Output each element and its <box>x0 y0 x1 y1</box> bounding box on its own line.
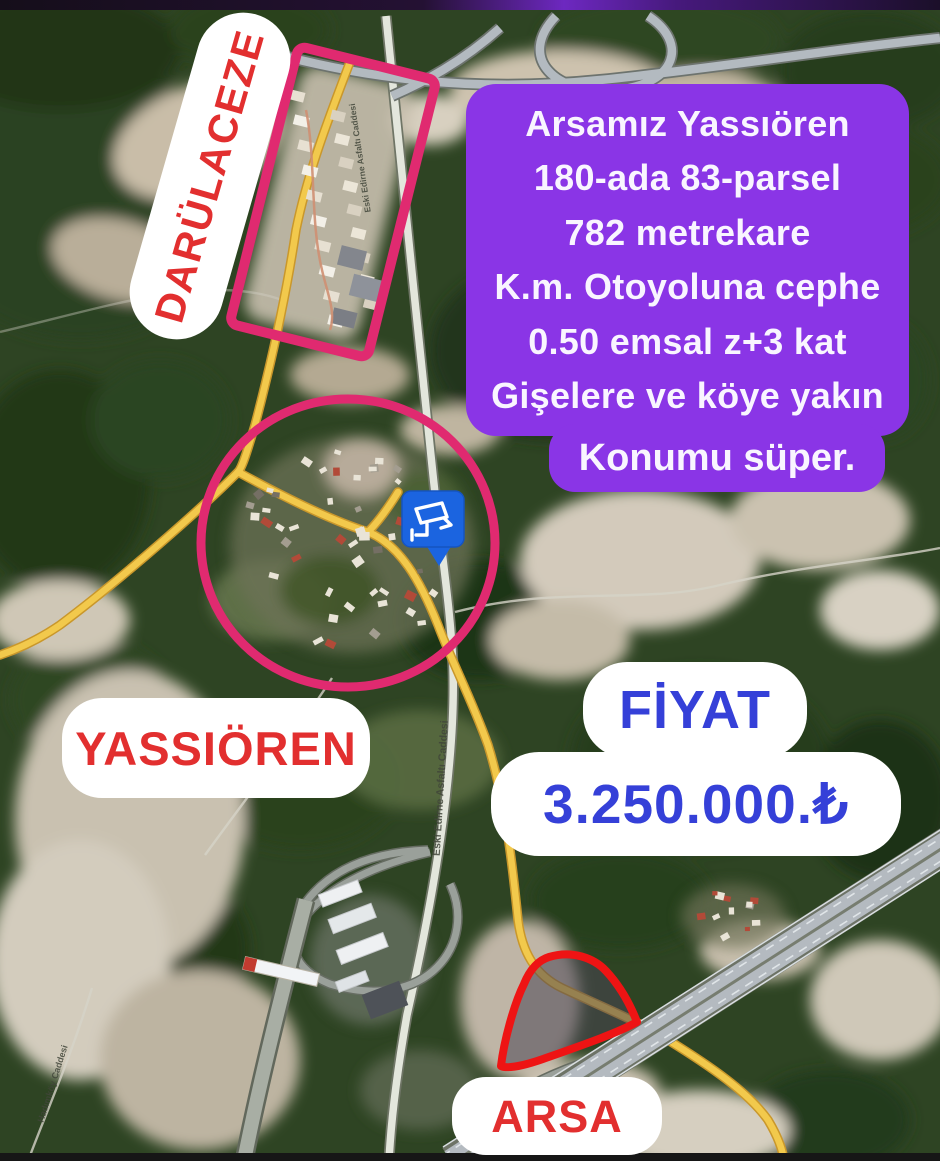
info-line: Arsamız Yassıören <box>466 103 909 145</box>
price-value-label: 3.250.000.₺ <box>491 752 901 856</box>
listing-info-footer: Konumu süper. <box>549 424 885 492</box>
yassioren-label: YASSIÖREN <box>62 698 370 798</box>
info-line: 180-ada 83-parsel <box>466 157 909 199</box>
cctv-camera-marker[interactable] <box>400 490 466 574</box>
listing-info-box: Arsamız Yassıören 180-ada 83-parsel 782 … <box>466 84 909 436</box>
listing-map-image: Eski Edirne Asfaltı Caddesi Eski Edirne … <box>0 0 940 1161</box>
info-line: Gişelere ve köye yakın <box>466 375 909 417</box>
bottom-bar <box>0 1153 940 1161</box>
marker-pointer <box>426 545 452 566</box>
info-line: 0.50 emsal z+3 kat <box>466 321 909 363</box>
info-line: 782 metrekare <box>466 212 909 254</box>
price-title-label: FİYAT <box>583 662 807 758</box>
info-line: K.m. Otoyoluna cephe <box>466 266 909 308</box>
top-bar <box>0 0 940 10</box>
arsa-label: ARSA <box>452 1077 662 1155</box>
